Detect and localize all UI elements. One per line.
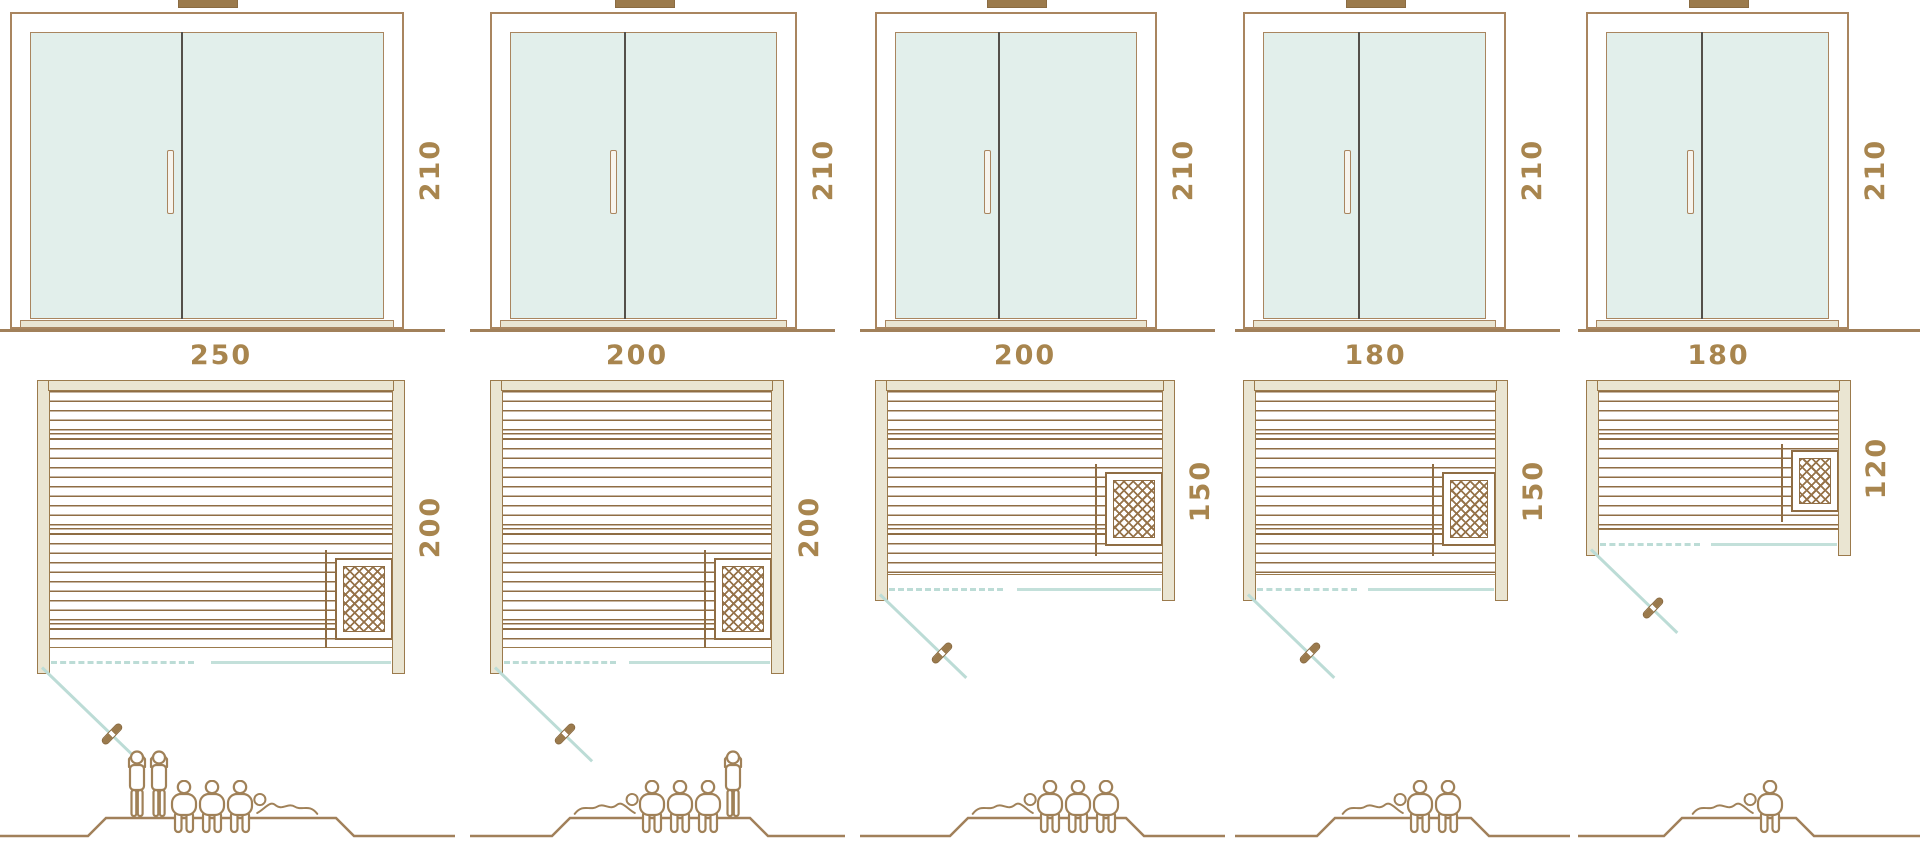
- back-wall: [1254, 380, 1497, 391]
- wall-post-right: [771, 380, 784, 674]
- glass-front-wall-line: [1368, 588, 1494, 591]
- heater-grille-icon: [1450, 480, 1488, 538]
- sauna-depth-dimension: 200: [416, 482, 446, 572]
- panel-divider: [998, 32, 1000, 319]
- bench-edge-line: [704, 550, 706, 648]
- glass-front-wall-line: [211, 661, 391, 664]
- bench-edge-line: [1781, 444, 1783, 522]
- glass-panels: [1263, 32, 1486, 319]
- sauna-depth-dimension: 150: [1186, 446, 1216, 536]
- glass-panels: [30, 32, 384, 319]
- back-wall: [886, 380, 1164, 391]
- sauna-heater: [1442, 472, 1496, 546]
- open-door-swing-line: [1247, 593, 1335, 679]
- wall-section-marker: [987, 0, 1047, 8]
- glass-panels: [510, 32, 777, 319]
- sauna-model-column-1: 210 250 200: [0, 0, 455, 856]
- door-sill: [885, 320, 1147, 328]
- sauna-heater: [335, 558, 393, 640]
- door-handle: [610, 150, 617, 214]
- door-elevation: [875, 12, 1157, 329]
- person-lying-icon: [1340, 790, 1410, 818]
- bench-edge-line: [1095, 464, 1097, 556]
- capacity-figures: [106, 750, 336, 818]
- open-door-swing-line: [1590, 548, 1678, 634]
- sauna-width-dimension: 250: [37, 341, 405, 371]
- door-opening-dashed-line: [889, 588, 1003, 591]
- sauna-width-dimension: 180: [1586, 341, 1851, 371]
- sauna-depth-dimension: 120: [1862, 423, 1892, 513]
- glass-panels: [895, 32, 1137, 319]
- sauna-model-column-5: 210 180 120: [1578, 0, 1920, 856]
- door-opening-dashed-line: [1600, 543, 1700, 546]
- sauna-depth-dimension: 200: [795, 482, 825, 572]
- glass-fixed-panel: [625, 32, 777, 319]
- door-sill: [1596, 320, 1839, 328]
- ground-line: [1235, 329, 1560, 332]
- panel-divider: [181, 32, 183, 319]
- capacity-figures: [570, 750, 750, 818]
- glass-front-wall-line: [629, 661, 770, 664]
- ground-line: [1578, 329, 1920, 332]
- floor-plan: [875, 380, 1175, 601]
- person-lying-icon: [1690, 790, 1760, 818]
- sauna-width-dimension: 200: [875, 341, 1175, 371]
- bench-edge-line: [1432, 464, 1434, 556]
- glass-panels: [1606, 32, 1829, 319]
- glass-fixed-panel: [999, 32, 1137, 319]
- floor-plan: [37, 380, 405, 674]
- bench-edge-line: [325, 550, 327, 648]
- sauna-width-dimension: 200: [490, 341, 784, 371]
- door-height-dimension: 210: [416, 125, 446, 215]
- person-standing-icon: [718, 750, 748, 818]
- heater-grille-icon: [1113, 480, 1155, 538]
- door-height-dimension: 210: [1169, 125, 1199, 215]
- door-opening-dashed-line: [1257, 588, 1357, 591]
- back-wall: [501, 380, 773, 391]
- glass-door-panel: [510, 32, 625, 319]
- wall-post-right: [1838, 380, 1851, 556]
- wall-post-left: [37, 380, 50, 674]
- panel-divider: [1701, 32, 1703, 319]
- sauna-heater: [1105, 472, 1163, 546]
- open-door-swing-line: [879, 593, 967, 679]
- door-handle: [1687, 150, 1694, 214]
- door-handle: [1344, 150, 1351, 214]
- wall-section-marker: [1346, 0, 1406, 8]
- door-opening-dashed-line: [51, 661, 194, 664]
- wall-post-left: [1243, 380, 1256, 601]
- glass-front-wall-line: [1711, 543, 1837, 546]
- door-sill: [1253, 320, 1496, 328]
- person-sitting-icon: [1752, 780, 1788, 834]
- door-elevation: [1586, 12, 1849, 329]
- wall-post-right: [1495, 380, 1508, 601]
- ground-line: [470, 329, 835, 332]
- wall-post-right: [392, 380, 405, 674]
- glass-front-wall-line: [1017, 588, 1161, 591]
- person-lying-icon: [572, 790, 642, 818]
- capacity-figures: [1335, 750, 1471, 818]
- floor-plan: [1586, 380, 1851, 556]
- door-handle: [984, 150, 991, 214]
- sauna-width-dimension: 180: [1243, 341, 1508, 371]
- door-height-dimension: 210: [1518, 125, 1548, 215]
- open-door-swing-line: [494, 666, 593, 762]
- back-wall: [1597, 380, 1840, 391]
- heater-grille-icon: [722, 566, 764, 632]
- wall-section-marker: [615, 0, 675, 8]
- glass-fixed-panel: [1702, 32, 1829, 319]
- person-sitting-icon: [1430, 780, 1466, 834]
- glass-fixed-panel: [182, 32, 384, 319]
- panel-divider: [624, 32, 626, 319]
- open-door-swing-line: [41, 666, 140, 762]
- ground-line: [860, 329, 1215, 332]
- back-wall: [48, 380, 394, 391]
- door-elevation: [10, 12, 404, 329]
- wall-section-marker: [178, 0, 238, 8]
- floor-plan: [490, 380, 784, 674]
- door-handle: [167, 150, 174, 214]
- wall-post-left: [1586, 380, 1599, 556]
- floor-plan: [1243, 380, 1508, 601]
- person-sitting-icon: [1088, 780, 1124, 834]
- sauna-heater: [714, 558, 772, 640]
- wall-section-marker: [1689, 0, 1749, 8]
- sauna-heater: [1791, 450, 1839, 512]
- door-elevation: [1243, 12, 1506, 329]
- door-elevation: [490, 12, 797, 329]
- heater-grille-icon: [343, 566, 385, 632]
- panel-divider: [1358, 32, 1360, 319]
- capacity-figures: [1682, 750, 1796, 818]
- person-lying-icon: [250, 790, 320, 818]
- door-sill: [20, 320, 394, 328]
- capacity-figures: [968, 750, 1126, 818]
- sauna-depth-dimension: 150: [1519, 446, 1549, 536]
- wall-post-left: [490, 380, 503, 674]
- sauna-model-column-3: 210 200 150: [860, 0, 1225, 856]
- ground-line: [0, 329, 445, 332]
- door-height-dimension: 210: [1861, 125, 1891, 215]
- door-opening-dashed-line: [504, 661, 616, 664]
- glass-fixed-panel: [1359, 32, 1486, 319]
- wall-post-left: [875, 380, 888, 601]
- door-sill: [500, 320, 787, 328]
- door-height-dimension: 210: [809, 125, 839, 215]
- wall-post-right: [1162, 380, 1175, 601]
- heater-grille-icon: [1799, 458, 1831, 504]
- person-lying-icon: [970, 790, 1040, 818]
- sauna-model-column-2: 210 200 200: [470, 0, 845, 856]
- sauna-size-diagram: 210 250 200: [0, 0, 1920, 856]
- sauna-model-column-4: 210 180 150: [1235, 0, 1570, 856]
- glass-door-panel: [30, 32, 182, 319]
